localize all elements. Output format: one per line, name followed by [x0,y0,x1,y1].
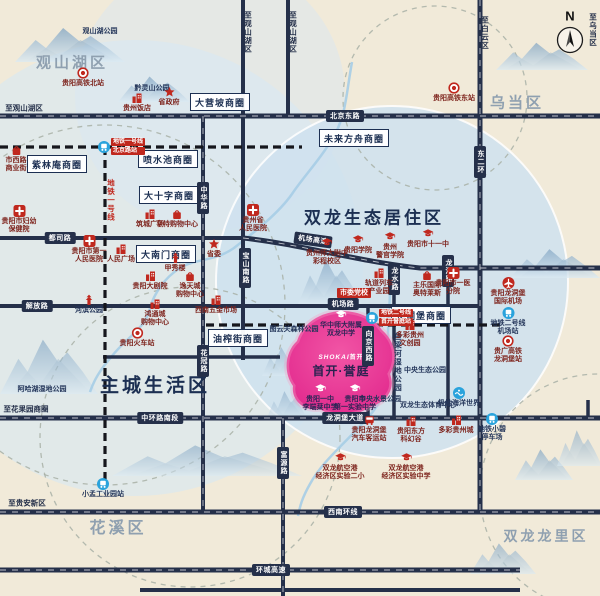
poi-exp-middle-school-label: 经济区实验中学 [382,473,431,481]
poi-polar-ocean-world: 极地海洋世界 [438,387,480,408]
star-icon [208,238,220,250]
poi-rail-industry-park-label: 轨道列车 [365,280,393,288]
poi-huazhong-normal-school-label: 华中师大附属 [320,322,362,330]
district-label-shuanglong-eco: 双龙生态居住区 [304,204,444,229]
poi-hebin-park-label: 河滨公园 [75,307,103,315]
poi-rail-industry-park-label: 产业园 [365,288,393,296]
graduation-cap-icon [384,231,396,243]
poi-hebin-park: 河滨公园 [75,294,103,315]
road-label: 宝山南路 [239,248,251,288]
poi-metro2-airport-station: 地铁二号线机场站 [491,307,526,336]
poi-rail-industry-park: 轨道列车产业园 [365,267,393,296]
edge-label: 至贵安新区 [8,498,46,509]
poi-xiaobi-metro-depot: 地铁小碧停车场 [478,413,506,442]
poi-police-college-label: 警官学院 [376,252,404,260]
poi-renmin-square: 人民广场 [107,243,135,264]
district-label-huaxi: 花溪区 [89,514,146,538]
poi-guiyang-grand-theatre: 贵阳大剧院 [133,270,168,291]
poi-hsr-longdongbao-station-label: 贵广高铁 [494,348,522,356]
train-station-icon [448,82,460,94]
poi-no11-middle-school: 贵阳市十一中 [407,228,449,249]
shopping-bag-icon [184,270,196,282]
poi-first-exp-school-label: 第一实验中学 [334,404,376,412]
poi-guanshanhu-park: 观山湖公园 [83,28,118,36]
building-icon [144,270,156,282]
poi-provincial-committee-label: 省委 [207,251,221,259]
poi-huazhong-normal-school-label: 双龙中学 [320,330,362,338]
graduation-cap-icon [321,237,333,249]
business-circle-youzhajie: 油榨街商圈 [208,329,268,347]
district-label-shuanglong-longli: 双龙龙里区 [504,526,589,546]
poi-exp-middle-school-label: 双龙航空港 [382,465,431,473]
road-label: 北京东路 [326,110,364,122]
poi-north-hsr-station: 贵阳高铁北站 [62,67,104,88]
poi-provincial-peoples-hospital-label: 贵州省 [239,217,267,225]
edge-label: 至白云区 [480,16,491,50]
poi-hardware-market: 西南五金市场 [195,294,237,315]
road-label: 向京西路 [362,326,374,366]
poi-hongtongcheng-mall: 鸿通城购物中心 [141,298,169,327]
poi-guiyang-college: 贵阳学院 [344,234,372,255]
graduation-cap-icon [352,234,364,246]
road-label: 解放路 [22,300,53,312]
ocean-world-icon [453,387,465,399]
edge-label: 地铁一号线 [106,179,117,222]
map-labels-layer: N SHOKAI首开 首开·誉庭 观山湖区乌当区花溪区双龙龙里区双龙生态居住区主… [0,0,600,596]
poi-first-hospital-branch-label: 贵阳市一医 [436,280,471,288]
poi-guanshanhu-park-label: 观山湖公园 [83,28,118,36]
poi-exp-middle-school: 双龙航空港经济区实验中学 [382,452,431,481]
poi-lidaofen-school-label: 李端棻中学 [303,404,338,412]
edge-label: 至乌当区 [588,13,599,47]
metro-icon [502,307,514,319]
poi-hsr-longdongbao-station: 贵广高铁龙洞堡站 [494,335,522,364]
poi-first-peoples-hospital: 贵阳市第一人民医院 [72,235,107,264]
poi-guizhou-hotel: 贵州饭店 [123,92,151,113]
poi-normal-univ-high-school-label: 彩程校区 [306,258,348,266]
station-tag: 北京路站 [111,147,145,155]
station-tag: 地铁一号线 [111,138,145,146]
poi-duocai-culture-park-label: 文创园 [396,340,424,348]
poi-fuyou-hospital-label: 贵阳市妇幼 [2,218,37,226]
road-label: 环城高速 [252,564,290,576]
train-station-icon [77,67,89,79]
poi-guiyang-railway-station: 贵阳火车站 [120,327,155,348]
graduation-cap-icon [335,309,347,321]
poi-first-hospital-branch-label: 分院 [436,288,471,296]
poi-xiaobi-metro-depot-label: 地铁小碧 [478,426,506,434]
poi-duocai-culture-park-label: 多彩贵州 [396,332,424,340]
poi-xiaobi-metro-depot-label: 停车场 [478,434,506,442]
metro-icon [97,478,109,490]
poi-no11-middle-school-label: 贵阳市十一中 [407,241,449,249]
poi-central-eco-park-label: 中央生态公园 [404,367,446,375]
poi-shixilu-biz-street-label: 商业街 [6,165,27,173]
project-brand: SHOKAI首开 [313,352,370,361]
poi-exp-primary-school-label: 经济区实验二小 [316,473,365,481]
graduation-cap-icon [422,228,434,240]
poi-normal-univ-high-school: 贵州师大附中彩程校区 [306,237,348,266]
poi-provincial-government: 省政府 [159,86,180,107]
poi-hunter-mall-label: 亨特购物中心 [156,221,198,229]
edge-label: 至观山湖区 [243,11,254,54]
metro-icon [98,141,110,153]
edge-label: 至花果园商圈 [4,404,49,415]
station-metro-line2-project-station: 地铁二号线首开誉庭站 [366,312,378,325]
hospital-cross-icon [247,204,259,216]
building-icon [450,414,462,426]
poi-first-exp-school: 贵阳市第一实验中学 [334,383,376,412]
poi-lidaofen-school-label: 贵阳一中 [303,396,338,404]
poi-xiaomeng-station-label: 小孟工业园站 [82,491,124,499]
poi-yitiancheng-mall-label: 逸天城 [176,283,204,291]
road-label: 西南环线 [324,506,362,518]
business-circle-dashizi: 大十字商圈 [139,186,199,204]
poi-ahahu-wetland-park: 阿哈湖湿地公园 [18,386,67,394]
poi-xiaomeng-station: 小孟工业园站 [82,478,124,499]
poi-metro2-airport-station-label: 地铁二号线 [491,320,526,328]
compass-north-label: N [565,9,574,24]
building-icon [144,208,156,220]
poi-polar-ocean-world-label: 极地海洋世界 [438,400,480,408]
train-station-icon [131,327,143,339]
road-label: 中华路 [197,182,209,214]
poi-first-peoples-hospital-label: 贵阳市第一 [72,248,107,256]
poi-longdongbao-airport-label: 国际机场 [491,298,526,306]
poi-renmin-square-label: 人民广场 [107,256,135,264]
station-tags: 地铁二号线首开誉庭站 [379,309,413,327]
train-station-icon [502,335,514,347]
station-tag: 地铁二号线 [379,309,413,317]
building-icon [115,243,127,255]
hospital-cross-icon [13,205,25,217]
station-tags: 地铁一号线北京路站 [111,138,145,156]
graduation-cap-icon [400,452,412,464]
poi-duocai-guizhou-city: 多彩贵州城 [439,414,474,435]
poi-hongtongcheng-mall-label: 鸿通城 [141,311,169,319]
poi-scifi-valley-label: 贵阳东方 [397,428,425,436]
edge-label: 至观山湖区 [5,103,43,114]
building-icon [149,298,161,310]
poi-bus-terminal-label: 汽车客运站 [352,435,387,443]
road-label: 东二环 [474,146,486,178]
poi-hunter-mall: 亨特购物中心 [156,208,198,229]
poi-police-college-label: 贵州 [376,244,404,252]
graduation-cap-icon [334,452,346,464]
poi-fuyou-hospital: 贵阳市妇幼保健院 [2,205,37,234]
poi-tuyunguan-forest-park: 图云关森林公园 [270,326,319,334]
poi-fuyou-hospital-label: 保健院 [2,226,37,234]
poi-first-hospital-branch: 贵阳市一医分院 [436,267,471,296]
poi-ahahu-wetland-park-label: 阿哈湖湿地公园 [18,386,67,394]
poi-east-hsr-station: 贵阳高铁东站 [433,82,475,103]
hospital-cross-icon [83,235,95,247]
poi-hardware-market-label: 西南五金市场 [195,307,237,315]
station-tag: 首开誉庭站 [379,318,413,326]
shopping-bag-icon [10,144,22,156]
poi-provincial-peoples-hospital-label: 人民医院 [239,225,267,233]
poi-guiyang-railway-station-label: 贵阳火车站 [120,340,155,348]
hospital-cross-icon [447,267,459,279]
metro-icon [486,413,498,425]
project-logo: SHOKAI首开 首开·誉庭 [313,352,370,379]
building-icon [405,415,417,427]
poi-hsr-longdongbao-station-label: 龙洞堡站 [494,356,522,364]
poi-provincial-committee: 省委 [207,238,221,259]
building-icon [210,294,222,306]
metro-icon [366,312,378,324]
project-name: 首开·誉庭 [313,362,370,379]
poi-shixilu-biz-street: 市西路商业街 [6,144,27,173]
pagoda-icon [169,252,181,264]
poi-guiyang-college-label: 贵阳学院 [344,247,372,255]
poi-lidaofen-school: 贵阳一中李端棻中学 [303,383,338,412]
poi-exp-primary-school: 双龙航空港经济区实验二小 [316,452,365,481]
business-circle-weilai-fangzhou: 未来方舟商圈 [319,129,389,147]
graduation-cap-icon [349,383,361,395]
poi-scifi-valley-label: 科幻谷 [397,436,425,444]
graduation-cap-icon [314,383,326,395]
business-circle-penshuichi: 喷水池商圈 [138,150,198,168]
poi-provincial-peoples-hospital: 贵州省人民医院 [239,204,267,233]
road-label: 中环路南段 [137,412,183,424]
road-label: 花冠路 [197,345,209,377]
poi-central-eco-park: 中央生态公园 [404,367,446,375]
district-label-main-city: 主城生活区 [100,371,210,398]
poi-north-hsr-station-label: 贵阳高铁北站 [62,80,104,88]
poi-hongtongcheng-mall-label: 购物中心 [141,319,169,327]
poi-longdongbao-airport-label: 贵阳龙洞堡 [491,290,526,298]
poi-normal-univ-high-school-label: 贵州师大附中 [306,250,348,258]
pagoda-icon [83,294,95,306]
poi-first-peoples-hospital-label: 人民医院 [72,256,107,264]
star-icon [163,86,175,98]
building-icon [131,92,143,104]
road-label: 富源路 [277,447,289,479]
bus-icon [363,414,375,426]
airplane-icon [502,277,514,289]
poi-bus-terminal-label: 贵阳龙洞堡 [352,427,387,435]
poi-first-exp-school-label: 贵阳市 [334,396,376,404]
poi-tuyunguan-forest-park-label: 图云关森林公园 [270,326,319,334]
business-circle-zilinan: 紫林庵商圈 [27,155,87,173]
poi-guiyang-grand-theatre-label: 贵阳大剧院 [133,283,168,291]
poi-guizhou-hotel-label: 贵州饭店 [123,105,151,113]
poi-shixilu-biz-street-label: 市西路 [6,157,27,165]
shopping-bag-icon [171,208,183,220]
shopping-bag-icon [421,269,433,281]
poi-duocai-guizhou-city-label: 多彩贵州城 [439,427,474,435]
location-map: N SHOKAI首开 首开·誉庭 观山湖区乌当区花溪区双龙龙里区双龙生态居住区主… [0,0,600,596]
poi-police-college: 贵州警官学院 [376,231,404,260]
edge-label: 至观山湖区 [288,11,299,54]
poi-exp-primary-school-label: 双龙航空港 [316,465,365,473]
district-label-wudang: 乌当区 [490,92,544,113]
poi-provincial-government-label: 省政府 [159,99,180,107]
poi-huazhong-normal-school: 华中师大附属双龙中学 [320,309,362,338]
business-circle-dayingpo: 大营坡商圈 [190,93,250,111]
poi-bus-terminal: 贵阳龙洞堡汽车客运站 [352,414,387,443]
station-metro-line1-beijing-rd-station: 地铁一号线北京路站 [98,141,110,154]
poi-east-hsr-station-label: 贵阳高铁东站 [433,95,475,103]
building-icon [373,267,385,279]
poi-longdongbao-airport: 贵阳龙洞堡国际机场 [491,277,526,306]
poi-scifi-valley: 贵阳东方科幻谷 [397,415,425,444]
